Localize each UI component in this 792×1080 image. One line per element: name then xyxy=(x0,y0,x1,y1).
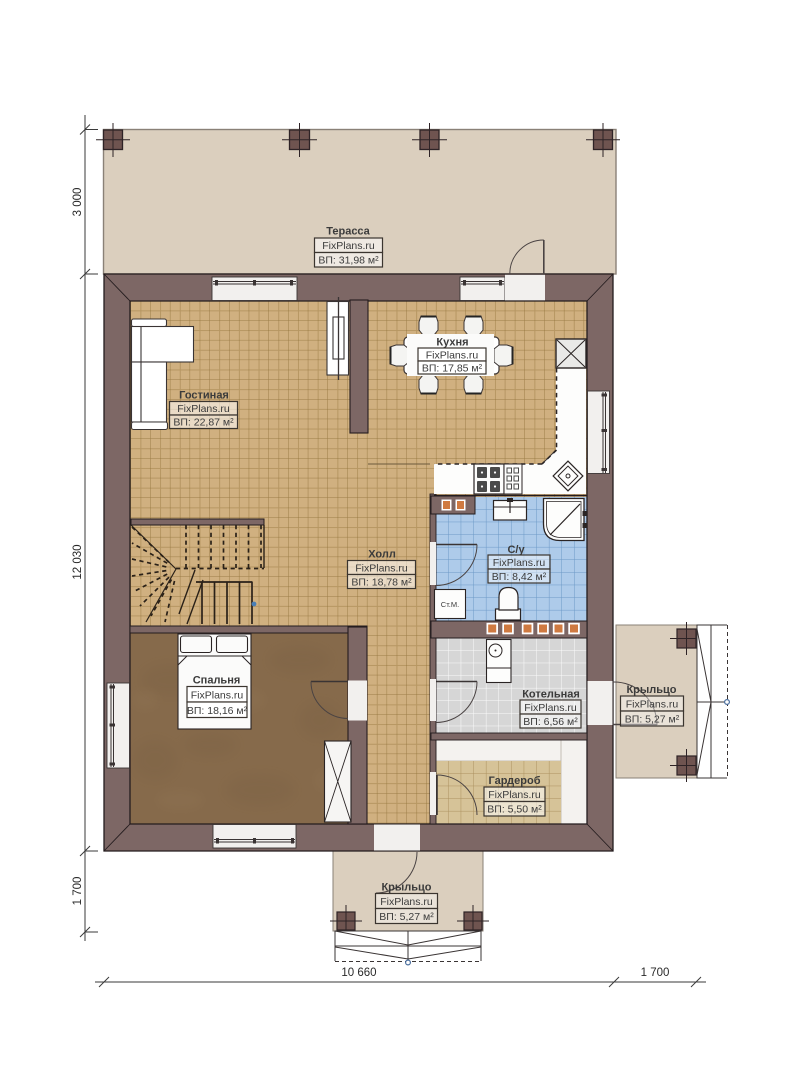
svg-text:Гардероб: Гардероб xyxy=(489,775,541,787)
svg-text:Терасса: Терасса xyxy=(326,226,370,238)
svg-text:FixPlans.ru: FixPlans.ru xyxy=(626,699,679,711)
svg-text:ВП: 17,85 м²: ВП: 17,85 м² xyxy=(422,363,483,375)
svg-text:1 700: 1 700 xyxy=(72,877,84,906)
svg-text:ВП: 18,78 м²: ВП: 18,78 м² xyxy=(351,577,412,589)
svg-text:Ст.М.: Ст.М. xyxy=(441,600,459,609)
svg-text:Кухня: Кухня xyxy=(436,337,468,349)
svg-text:Крыльцо: Крыльцо xyxy=(381,882,431,894)
svg-text:Холл: Холл xyxy=(368,549,396,561)
svg-text:1 700: 1 700 xyxy=(641,967,670,979)
svg-text:ВП: 31,98 м²: ВП: 31,98 м² xyxy=(318,255,379,267)
svg-text:FixPlans.ru: FixPlans.ru xyxy=(355,563,408,575)
svg-text:ВП: 5,27 м²: ВП: 5,27 м² xyxy=(379,911,434,923)
svg-text:ВП: 5,50 м²: ВП: 5,50 м² xyxy=(487,804,542,816)
svg-text:Крыльцо: Крыльцо xyxy=(626,684,676,696)
svg-text:Спальня: Спальня xyxy=(193,675,241,687)
svg-text:FixPlans.ru: FixPlans.ru xyxy=(191,690,244,702)
svg-text:10 660: 10 660 xyxy=(341,967,376,979)
svg-text:3 000: 3 000 xyxy=(72,188,84,217)
svg-text:FixPlans.ru: FixPlans.ru xyxy=(488,789,541,801)
svg-text:Котельная: Котельная xyxy=(522,689,580,701)
svg-text:FixPlans.ru: FixPlans.ru xyxy=(524,702,577,714)
svg-text:FixPlans.ru: FixPlans.ru xyxy=(380,896,433,908)
svg-text:FixPlans.ru: FixPlans.ru xyxy=(426,350,479,362)
svg-text:ВП: 5,27 м²: ВП: 5,27 м² xyxy=(625,714,680,726)
svg-text:ВП: 8,42 м²: ВП: 8,42 м² xyxy=(492,571,547,583)
svg-text:FixPlans.ru: FixPlans.ru xyxy=(493,557,546,569)
svg-text:Гостиная: Гостиная xyxy=(179,390,229,402)
svg-text:ВП: 22,87 м²: ВП: 22,87 м² xyxy=(173,417,234,429)
svg-text:ВП: 6,56 м²: ВП: 6,56 м² xyxy=(523,716,578,728)
svg-text:FixPlans.ru: FixPlans.ru xyxy=(177,403,230,415)
svg-text:С/у: С/у xyxy=(507,544,525,556)
svg-text:12 030: 12 030 xyxy=(72,544,84,579)
svg-text:ВП: 18,16 м²: ВП: 18,16 м² xyxy=(187,705,248,717)
svg-text:FixPlans.ru: FixPlans.ru xyxy=(322,240,375,252)
